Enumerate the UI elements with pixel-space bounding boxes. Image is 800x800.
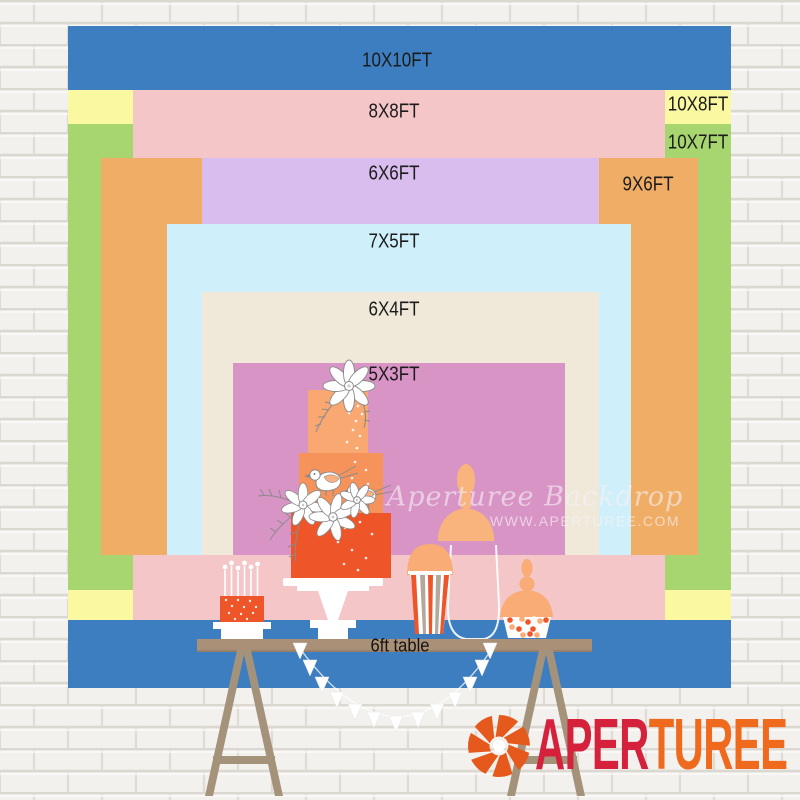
watermark-script: Aperturee Backdrop bbox=[387, 482, 684, 513]
flower-top bbox=[323, 360, 375, 412]
dessert-table-illustration bbox=[0, 0, 800, 800]
popcorn-box-illustration bbox=[407, 544, 453, 634]
small-cake-illustration bbox=[213, 561, 271, 641]
wedding-cake-illustration bbox=[258, 360, 393, 641]
glass-outline bbox=[448, 545, 499, 639]
watermark-url: WWW.APERTUREE.COM bbox=[490, 513, 680, 529]
candles bbox=[225, 566, 258, 597]
cake-stand bbox=[283, 578, 383, 641]
table-size-label: 6ft table bbox=[371, 636, 430, 657]
backdrop-size-chart-image: 10X10FT 8X8FT 10X8FT 10X7FT 6X6FT 9X6FT … bbox=[0, 0, 800, 800]
candy-jar-illustration bbox=[500, 559, 553, 638]
